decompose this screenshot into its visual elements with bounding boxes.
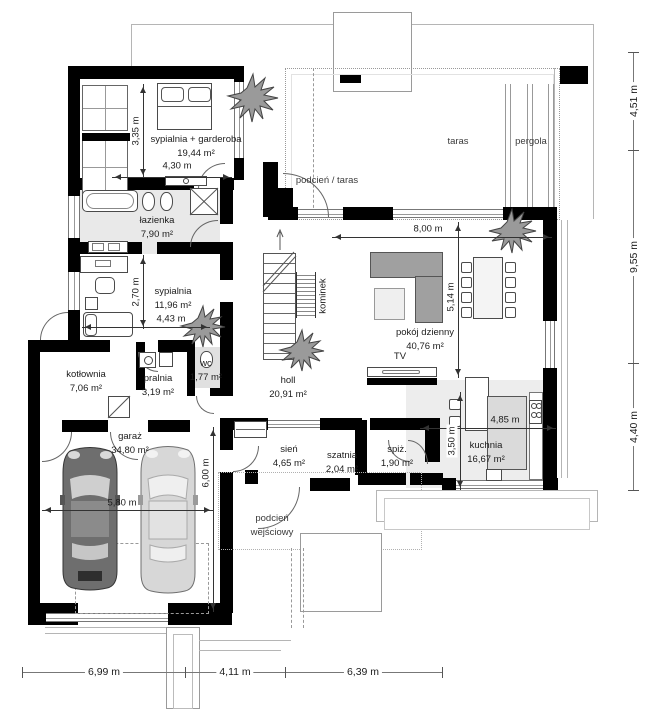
dim-line [460,392,461,490]
wall [68,238,80,272]
sink [92,243,104,251]
kitchen-tall-unit [465,377,489,431]
room-label-holl: holl20,91 m² [269,374,307,402]
terrace-edge-line [554,68,555,218]
dim-line [112,177,232,178]
wall [82,133,130,141]
fireplace-flue [296,272,316,318]
wall [343,207,393,220]
dining-chair [505,292,516,303]
dim-line [332,237,552,238]
dining-chair [461,292,472,303]
dining-chair [461,262,472,273]
room-label-pralnia: pralnia3,19 m² [142,372,174,400]
dim-bottom-1: 4,11 m [216,666,253,678]
dim-w443: 4,43 m [154,314,187,325]
burner [536,412,542,418]
chair [95,277,115,294]
window [68,272,80,310]
path-line [303,548,304,628]
door-boiler-exterior [40,312,68,340]
door-wc [196,396,214,414]
dim-bottom-2: 6,39 m [344,666,382,678]
dim-right-1: 9,55 m [628,238,640,276]
dining-chair [505,277,516,288]
dim-right-2: 4,40 m [628,408,640,446]
dim-h335: 3,35 m [131,114,142,147]
side-edge-line [561,220,562,478]
dim-h270: 2,70 m [131,275,142,308]
wall [210,388,233,396]
wall [370,418,425,430]
dim-h600: 6,00 m [201,456,212,489]
wall [234,66,244,82]
wall [263,162,278,217]
chimney-bottom [300,533,382,612]
car-light [136,441,200,595]
room-label-lazienka: łazienka7,90 m² [140,214,175,242]
staircase [263,253,296,360]
window [393,209,503,218]
wall [30,340,110,352]
room-label-garaz: garaż34,80 m² [111,430,149,458]
step-line [199,640,291,641]
dim-bottom-0: 6,99 m [85,666,123,678]
garage-door [46,613,168,622]
room-label-kuchnia: kuchnia16,67 m² [467,439,505,467]
pillow [188,87,211,102]
dim-line [420,428,556,429]
dresser-sink [183,178,189,184]
dim-w800: 8,00 m [411,224,444,235]
wall [234,158,244,180]
sofa-section [415,276,443,323]
wall [220,254,233,280]
room-label-sien: sień4,65 m² [273,443,305,471]
wall [62,420,108,432]
sofa-section [370,252,443,278]
laundry-sink [159,352,173,367]
wall [28,340,40,615]
floor-plan: sypialnia + garderoba19,44 m² łazienka7,… [0,0,660,719]
doorway-sill [268,420,320,428]
coffee-table [374,288,405,320]
sink [108,243,120,251]
path-line [291,548,292,628]
zone-label-podcien-taras: podcień / taras [296,174,358,188]
pillow [161,87,184,102]
zone-label-taras: taras [447,135,468,149]
window [545,321,555,368]
blanket-line [158,106,211,107]
step-line [199,650,281,651]
roof-outline-right [593,24,594,219]
wall [220,302,233,342]
room-label-sypialnia-garderoba: sypialnia + garderoba19,44 m² [150,133,241,161]
zone-label-pergola: pergola [515,135,547,149]
room-label-sypialnia: sypialnia11,96 m² [155,285,192,313]
pergola-post [505,84,511,208]
dim-w485: 4,85 m [488,415,521,426]
dining-chair [505,307,516,318]
dim-line [143,255,144,329]
bidet [160,192,173,211]
side-edge-line [567,220,568,478]
dim-h350: 3,50 m [447,424,458,457]
dim-line [82,327,210,328]
toilet [142,192,155,211]
wardrobe [82,85,128,131]
wall [187,388,195,396]
wall [68,66,80,196]
room-label-wc: wc1,77 m² [190,357,222,385]
zone-label-podcien-wejsciowy: podcień wejściowy [239,512,305,540]
wall [68,66,236,79]
dim-w430: 4,30 m [160,161,193,172]
kitchen-table [486,469,502,481]
wall [148,420,190,432]
burner [536,403,542,409]
side-table [85,297,98,310]
closet-rod [236,429,265,430]
zone-label-kominek: kominek [318,278,329,313]
wall [560,66,588,84]
window [68,196,80,238]
zone-label-tv: TV [394,350,406,364]
wall [543,368,557,480]
dim-line [458,222,459,378]
boiler [108,396,130,418]
room-label-szatnia: szatnia2,04 m² [326,449,358,477]
tv-partition-wall [367,378,437,385]
wall [68,310,80,342]
door-garage-hall [233,446,259,472]
dim-right-0: 4,51 m [628,82,640,120]
wardrobe [82,140,128,194]
side-terrace-step [384,498,590,530]
dim-line [143,84,144,178]
shower [190,188,218,215]
dim-w580: 5,80 m [105,498,138,509]
car-dark [58,443,122,591]
dining-chair [505,262,516,273]
washer-drum [144,356,153,365]
soundbar [382,370,420,374]
dining-chair [461,277,472,288]
bathtub-inner [86,193,134,209]
room-label-kotlownia: kotłownia7,06 m² [66,368,106,396]
room-label-spiz: spiż.1,90 m² [381,443,413,471]
dim-h514: 5,14 m [446,280,457,313]
desk-monitor [95,260,111,267]
driveway-line [45,627,168,628]
dining-chair [461,307,472,318]
dim-line [42,510,213,511]
roof-outline-left [131,24,132,67]
dining-table [473,257,503,319]
window [456,480,543,489]
dim-line [213,427,214,612]
driveway-line [45,633,168,634]
